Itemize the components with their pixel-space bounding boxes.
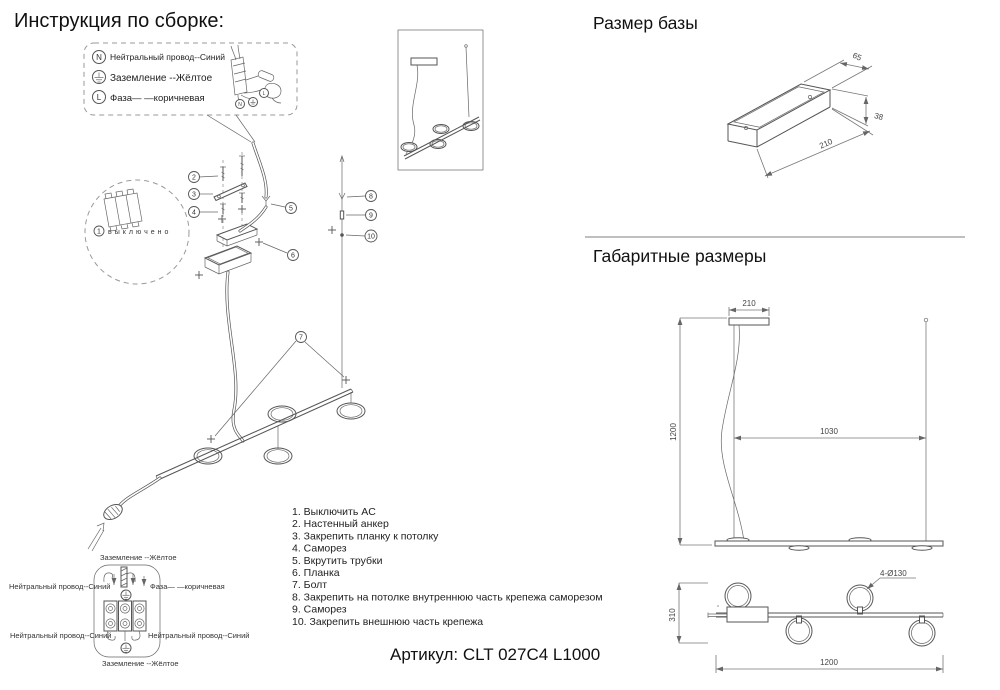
base-dim-height: 38 — [832, 89, 885, 126]
mini-n-letter: N — [238, 102, 242, 108]
wiring-ground-top-label: Заземление --Жёлтое — [100, 553, 177, 562]
canopy-dim: 210 — [729, 299, 769, 316]
exploded-view-drawing: 1 выключено — [85, 143, 377, 551]
svg-text:7: 7 — [299, 335, 303, 342]
legend-neutral-label: Нейтральный провод--Синий — [110, 52, 225, 62]
article-number: Артикул: CLT 027C4 L1000 — [390, 645, 600, 664]
span-dim: 1030 — [734, 427, 926, 438]
svg-text:65: 65 — [851, 51, 863, 63]
lamp-bar-rings — [156, 389, 365, 480]
svg-text:5: 5 — [289, 206, 293, 213]
wiring-ground-bottom-label: Заземление --Жёлтое — [102, 659, 179, 668]
step-6: 6. Планка — [292, 567, 340, 579]
base-tray — [205, 246, 251, 274]
suspension-cord — [227, 272, 243, 441]
phase-symbol-letter: L — [97, 93, 102, 102]
callout-3: 3 — [189, 189, 214, 200]
mini-ground-icon — [249, 98, 258, 107]
ground-terminal-top-icon — [121, 590, 131, 600]
page-title: Инструкция по сборке: — [14, 10, 224, 32]
steel-cable — [339, 156, 345, 388]
breaker-off-detail: 1 выключено — [85, 180, 189, 284]
svg-text:1030: 1030 — [820, 427, 838, 436]
hatched-wire — [121, 567, 127, 587]
assembly-steps-list: 1. Выключить AC 2. Настенный анкер 3. За… — [292, 506, 603, 628]
preview-rings — [401, 122, 479, 152]
anchor-screw — [220, 167, 226, 181]
wiring-neutral-left-label: Нейтральный провод--Синий — [9, 582, 110, 591]
callout-10: 10 — [346, 230, 377, 242]
base-dim-width: 65 — [804, 51, 872, 88]
side-view-drawing: 210 1200 1030 — [669, 299, 943, 550]
height-dim: 1200 — [669, 318, 727, 545]
overall-size-title: Габаритные размеры — [593, 246, 766, 266]
wiring-neutral-bottom-left-label: Нейтральный провод--Синий — [10, 631, 111, 640]
svg-text:9: 9 — [369, 213, 373, 220]
mini-l-letter: L — [263, 91, 266, 97]
callout-9: 9 — [346, 210, 377, 221]
base-size-title: Размер базы — [593, 13, 698, 33]
svg-text:10: 10 — [367, 234, 375, 241]
step-7: 7. Болт — [292, 579, 327, 591]
svg-text:1200: 1200 — [669, 423, 678, 441]
svg-text:4: 4 — [192, 210, 196, 217]
terminal-screwdriver-sketch: N L — [231, 45, 281, 109]
terminal-block — [104, 601, 146, 631]
wiring-phase-label: Фаза— —коричневая — [150, 582, 225, 591]
step-9: 9. Саморез — [292, 604, 347, 616]
callout-5: 5 — [271, 203, 297, 214]
step-1: 1. Выключить AC — [292, 506, 376, 518]
step-10: 10. Закрепить внешнюю часть крепежа — [292, 616, 483, 628]
svg-text:2: 2 — [192, 175, 196, 182]
ring-diameter-note: 4-Ø130 — [867, 569, 916, 589]
callout-4: 4 — [189, 207, 219, 218]
callout-8: 8 — [347, 191, 377, 202]
side-bar — [715, 538, 943, 550]
svg-text:3: 3 — [192, 192, 196, 199]
finished-lamp-preview — [398, 30, 483, 170]
step-3: 3. Закрепить планку к потолку — [292, 530, 439, 542]
svg-text:310: 310 — [668, 608, 677, 622]
svg-text:1200: 1200 — [820, 658, 838, 667]
front-view-drawing: 310 4-Ø130 1200 — [668, 569, 943, 673]
svg-text:4-Ø130: 4-Ø130 — [880, 569, 907, 578]
neutral-symbol-letter: N — [96, 53, 102, 62]
legend-phase-label: Фаза— —коричневая — [110, 93, 205, 104]
base-isometric-drawing: 65 38 210 — [728, 51, 885, 178]
step-5: 5. Вкрутить трубки — [292, 555, 383, 567]
svg-text:210: 210 — [818, 137, 834, 151]
wiring-diagram: Заземление --Жёлтое Нейтральный провод--… — [9, 553, 249, 668]
self-tap-screw — [220, 204, 226, 214]
ground-symbol-icon — [93, 71, 106, 84]
callout-2: 2 — [189, 172, 219, 183]
total-length-dim: 1200 — [716, 655, 943, 673]
step-2: 2. Настенный анкер — [292, 518, 389, 530]
svg-text:6: 6 — [291, 253, 295, 260]
svg-text:8: 8 — [369, 194, 373, 201]
svg-text:210: 210 — [742, 299, 756, 308]
ground-terminal-bottom-icon — [121, 643, 131, 653]
callout-1: 1 — [97, 229, 101, 236]
callout-6: 6 — [263, 243, 299, 261]
anchor-screw-2 — [239, 156, 245, 176]
step-4: 4. Саморез — [292, 543, 347, 555]
bolt-marks — [195, 205, 350, 443]
svg-text:38: 38 — [873, 111, 884, 122]
plug-arrow — [88, 523, 104, 551]
assembly-instruction-sheet: Инструкция по сборке: Размер базы Габари… — [0, 0, 1000, 690]
step-8: 8. Закрепить на потолке внутреннюю часть… — [292, 591, 603, 603]
ring-drop-dim: 310 — [668, 583, 708, 643]
wire-legend-box: N Нейтральный провод--Синий Заземление -… — [84, 43, 297, 142]
wiring-neutral-bottom-right-label: Нейтральный провод--Синий — [148, 631, 249, 640]
self-tap-screw-2 — [239, 193, 245, 203]
legend-ground-label: Заземление --Жёлтое — [110, 73, 213, 84]
breaker-off-label: выключено — [108, 229, 171, 236]
